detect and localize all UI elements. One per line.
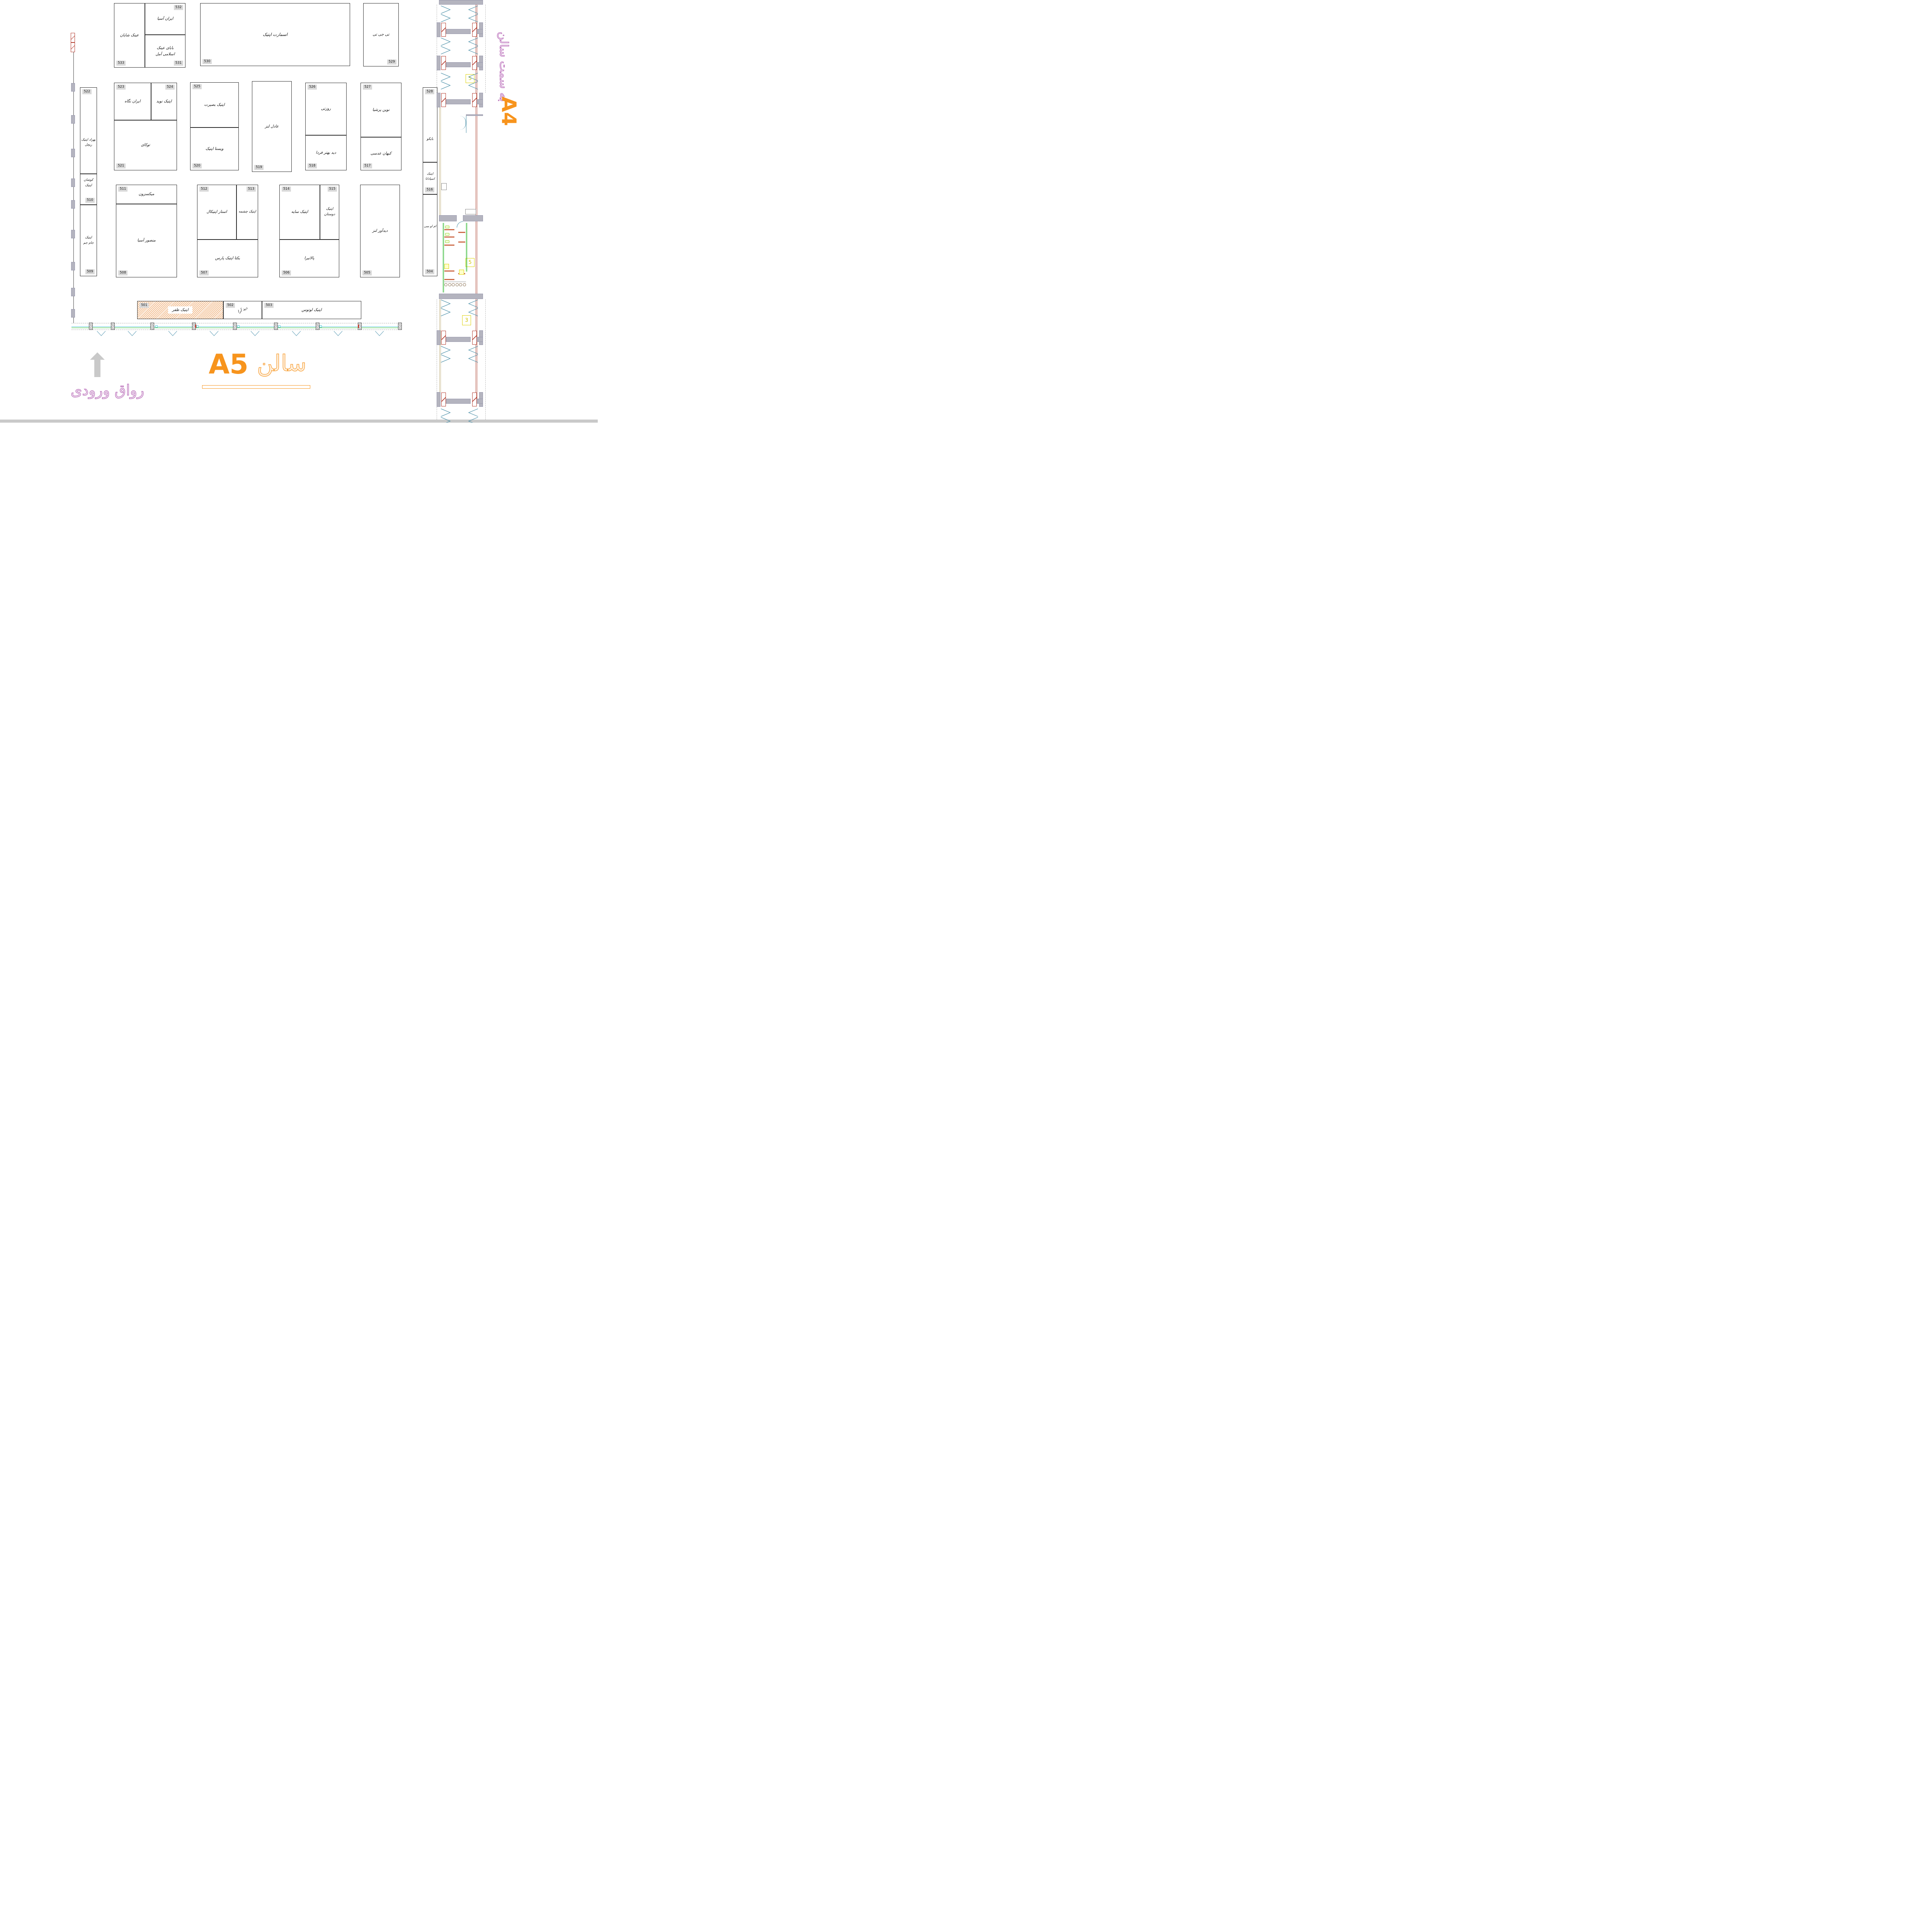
plan-linework: [465, 209, 476, 214]
booth-number: 525: [192, 84, 202, 89]
booth-name: میکسزون: [138, 191, 155, 197]
booth-number: 533: [116, 61, 126, 66]
plan-linework: [439, 107, 441, 216]
plan-linework: [472, 23, 477, 37]
booth-name: اپتیک سایه: [291, 209, 309, 215]
booth-number: 511: [118, 187, 128, 192]
plan-linework: [477, 99, 483, 104]
hall-a5-code: A5: [209, 348, 248, 380]
plan-linework: [477, 29, 483, 34]
plan-linework: [459, 270, 464, 275]
plan-linework: [468, 37, 478, 54]
booth-number: 512: [199, 187, 209, 192]
floor-plan-hall-a5: 533 عینک شایان 532 ایران آسیا 531 بابای …: [0, 0, 598, 423]
plan-linework: [477, 399, 483, 404]
booth-number: 527: [363, 85, 372, 90]
booth-509: 509 اپتیک جام جم: [80, 205, 97, 276]
plan-linework: [452, 283, 455, 286]
plan-linework: [440, 346, 451, 363]
corridor-room-3: 3: [462, 315, 471, 325]
booth-518: 518 دید بهتر فردا: [305, 135, 347, 170]
booth-name: اپتیک اسپادانا: [425, 172, 435, 181]
booth-519: 519 عادل لنز: [252, 81, 292, 172]
plan-linework: [71, 178, 75, 187]
plan-linework: [292, 331, 301, 336]
booth-name: اپتیک ظفر: [168, 306, 192, 314]
booth-name: اپتیک دوستان: [323, 207, 336, 218]
booth-name: ویستا اپتیک: [205, 146, 224, 152]
plan-linework: [440, 5, 451, 22]
booth-508: 508 منصور آسیا: [116, 204, 177, 277]
booth-506: 506 پالانیرا: [279, 240, 339, 277]
plan-linework: [458, 232, 465, 233]
booth-number: 509: [85, 269, 95, 274]
hall-name-label: سالن: [257, 350, 306, 376]
plan-linework: [441, 93, 446, 107]
plan-linework: [196, 325, 199, 328]
plan-linework: [444, 283, 447, 286]
plan-linework: [441, 56, 446, 70]
plan-linework: [485, 5, 486, 93]
booth-name: دید بهتر فردا: [315, 150, 337, 156]
plan-linework: [439, 0, 483, 5]
plan-linework: [466, 116, 466, 133]
plan-linework: [168, 331, 177, 336]
plan-linework: [250, 331, 260, 336]
plan-linework: [472, 56, 477, 70]
plan-linework: [71, 309, 75, 318]
booth-528: 528 بایکو: [423, 87, 437, 162]
plan-linework: [71, 115, 75, 124]
booth-name: توکای: [140, 142, 151, 148]
booth-name: بابای عینک اسلامی آمل: [155, 45, 176, 57]
plan-linework: [71, 288, 75, 296]
plan-linework: [440, 73, 451, 90]
plan-linework: [437, 56, 440, 70]
plan-linework: [443, 223, 444, 292]
plan-linework: [237, 325, 240, 328]
plan-linework: [71, 83, 75, 92]
plan-linework: [477, 62, 483, 67]
plan-linework: [358, 325, 359, 328]
booth-512: 512 استار اپتیکال: [197, 185, 236, 240]
hall-a4-code: A4: [494, 100, 521, 131]
booth-number: 528: [425, 89, 434, 94]
plan-linework: [278, 325, 281, 328]
booth-532: 532 ایران آسیا: [145, 3, 185, 35]
booth-number: 503: [264, 303, 274, 308]
plan-linework: [440, 37, 451, 54]
booth-name: اسمارت اپتیک: [262, 31, 288, 38]
plan-linework: [468, 73, 478, 90]
plan-linework: [468, 5, 478, 22]
plan-linework: [320, 325, 322, 328]
booth-number: 502: [226, 303, 235, 308]
plan-linework: [459, 283, 462, 286]
booth-number: 508: [118, 270, 128, 275]
plan-linework: [73, 33, 74, 323]
plan-linework: [460, 116, 466, 130]
booth-number: 507: [199, 270, 209, 275]
booth-name: روزتی: [320, 106, 332, 112]
plan-linework: [466, 223, 467, 272]
plan-linework: [472, 331, 477, 345]
room-number: 5: [468, 260, 471, 265]
plan-linework: [458, 241, 465, 243]
booth-name: عینک شایان: [119, 32, 140, 39]
plan-linework: [477, 337, 483, 342]
booth-name: دیدآور لنز: [372, 228, 389, 234]
plan-linework: [375, 331, 384, 336]
plan-linework: [437, 330, 440, 345]
booth-number: 515: [328, 187, 337, 192]
room-number: 3: [465, 318, 468, 323]
entrance-arrow-icon: [90, 352, 105, 377]
plan-linework: [316, 323, 320, 330]
plan-linework: [71, 230, 75, 238]
plan-linework: [444, 245, 454, 246]
plan-linework: [463, 283, 466, 286]
booth-number: 532: [174, 5, 183, 10]
plan-linework: [485, 299, 486, 420]
booth-number: 516: [425, 187, 434, 192]
plan-linework: [445, 233, 449, 236]
direction-to-hall-a4-label: به سمت سالن: [497, 5, 510, 102]
booth-name: اپتیک لوتوس: [301, 307, 322, 313]
plan-linework: [468, 346, 478, 363]
plan-linework: [439, 215, 457, 221]
booth-523: 523 ایران نگاه: [114, 83, 151, 120]
plan-linework: [444, 229, 454, 230]
booth-name: اپتیک جام جم: [83, 235, 95, 245]
plan-linework: [440, 299, 451, 316]
plan-linework: [445, 240, 449, 243]
booth-530: 530 اسمارت اپتیک: [200, 3, 350, 66]
booth-number: 531: [174, 61, 183, 66]
booth-510: 510 کوشان اپتیک: [80, 174, 97, 205]
booth-524: 524 اپتیک نوید: [151, 83, 177, 120]
booth-number: 501: [139, 303, 149, 308]
booth-522: 522 بهزاد اپتیک ریچل: [80, 87, 97, 174]
booth-name: بهزاد اپتیک ریچل: [80, 138, 97, 148]
booth-name: عادل لنز: [264, 124, 280, 130]
booth-513: 513 اپتیک چشمه: [236, 185, 258, 240]
plan-linework: [150, 323, 154, 330]
plan-linework: [398, 323, 402, 330]
plan-linework: [444, 270, 454, 272]
booth-name: کیهان عدسی: [370, 151, 392, 157]
booth-number: 530: [202, 59, 212, 64]
booth-number: 510: [85, 198, 95, 203]
plan-linework: [437, 5, 437, 93]
plan-linework: [439, 294, 483, 299]
plan-linework: [441, 23, 446, 37]
booth-number: 523: [116, 85, 126, 90]
plan-linework: [444, 282, 466, 282]
booth-number: 529: [387, 59, 396, 65]
booth-number: 505: [362, 270, 372, 275]
plan-linework: [441, 183, 447, 190]
plan-linework: [97, 331, 106, 336]
plan-linework: [444, 279, 454, 280]
plan-linework: [155, 325, 158, 328]
plan-linework: [448, 283, 451, 286]
booth-number: 521: [116, 163, 126, 168]
hall-title-underline: [202, 385, 310, 389]
plan-linework: [446, 337, 471, 342]
booth-number: 518: [308, 163, 317, 168]
plan-linework: [444, 264, 449, 269]
plan-linework: [444, 236, 454, 238]
booth-name: اپتیک نوید: [156, 99, 173, 105]
plan-linework: [333, 331, 343, 336]
plan-linework: [71, 42, 75, 52]
plan-linework: [466, 114, 483, 116]
booth-529: 529 تی جی تی: [363, 3, 399, 66]
booth-number: 514: [282, 187, 291, 192]
plan-linework: [71, 200, 75, 209]
booth-number: 519: [254, 165, 264, 170]
plan-linework: [445, 226, 449, 228]
booth-name: ایران نگاه: [124, 99, 141, 105]
booth-number: 506: [282, 270, 291, 275]
plan-linework: [468, 408, 478, 423]
plan-linework: [446, 29, 471, 34]
booth-name: اپتیک چشمه: [238, 209, 257, 215]
booth-525: 525 اپتیک بصیرت: [190, 82, 239, 127]
plan-linework: [71, 149, 75, 157]
plan-linework: [441, 331, 446, 345]
plan-linework: [457, 221, 463, 228]
plan-linework: [71, 33, 75, 42]
plan-linework: [446, 99, 471, 104]
plan-linework: [440, 408, 451, 423]
booth-number: 517: [363, 163, 372, 168]
plan-linework: [111, 323, 115, 330]
plan-linework: [456, 283, 459, 286]
plan-linework: [441, 393, 446, 406]
booth-number: 520: [192, 163, 202, 168]
booth-name: کوشان اپتیک: [80, 178, 97, 188]
booth-name: منصور آسیا: [136, 238, 156, 244]
plan-linework: [472, 93, 477, 107]
booth-name: ایران آسیا: [156, 16, 174, 22]
booth-number: 504: [425, 269, 434, 274]
booth-number: 526: [308, 85, 317, 90]
booth-number: 524: [165, 85, 175, 90]
plan-linework: [468, 299, 478, 316]
booth-507: 507 یکتا اپتیک پارس: [197, 240, 258, 277]
booth-505: 505 دیدآور لنز: [360, 185, 400, 277]
booth-503: 503 اپتیک لوتوس: [262, 301, 361, 319]
booth-527: 527 نوین پرشیا: [361, 83, 401, 137]
plan-linework: [472, 393, 477, 406]
booth-name: یکتا اپتیک پارس: [214, 255, 241, 262]
plan-linework: [437, 22, 440, 37]
booth-name: اپتیک بصیرت: [203, 102, 225, 108]
booth-number: 522: [82, 89, 92, 94]
booth-name: تی جی تی: [372, 32, 390, 38]
plan-linework: [71, 262, 75, 270]
booth-515: 515 اپتیک دوستان: [320, 185, 339, 240]
direction-text: به سمت سالن: [497, 32, 510, 102]
image-border-strip: [0, 420, 598, 423]
booth-name: بایکو: [422, 137, 438, 142]
plan-linework: [233, 323, 237, 330]
booth-520: 520 ویستا اپتیک: [190, 127, 239, 170]
booth-526: 526 روزتی: [305, 83, 347, 135]
booth-name: ام او سی: [422, 224, 438, 229]
booth-514: 514 اپتیک سایه: [279, 185, 320, 240]
booth-name: دید آرا: [236, 305, 249, 315]
plan-linework: [437, 392, 440, 407]
booth-502: 502 دید آرا: [223, 301, 262, 319]
booth-531: 531 بابای عینک اسلامی آمل: [145, 35, 185, 68]
plan-linework: [437, 93, 440, 107]
plan-linework: [274, 323, 278, 330]
entrance-label: رواق ورودی: [34, 382, 181, 399]
plan-linework: [128, 331, 137, 336]
plan-linework: [209, 331, 219, 336]
booth-501-highlighted: 501 اپتیک ظفر: [137, 301, 223, 319]
booth-521: 521 توکای: [114, 120, 177, 170]
booth-name: استار اپتیکال: [206, 209, 228, 215]
booth-533: 533 عینک شایان: [114, 3, 145, 68]
booth-504: 504 ام او سی: [423, 194, 437, 276]
booth-name: نوین پرشیا: [372, 107, 390, 113]
booth-name: پالانیرا: [304, 255, 315, 262]
booth-516: 516 اپتیک اسپادانا: [423, 162, 437, 194]
plan-linework: [446, 62, 471, 67]
booth-517: 517 کیهان عدسی: [361, 137, 401, 170]
booth-number: 513: [247, 187, 256, 192]
booth-511: 511 میکسزون: [116, 185, 177, 204]
plan-linework: [446, 399, 471, 404]
plan-linework: [89, 323, 93, 330]
plan-linework: [463, 215, 483, 221]
